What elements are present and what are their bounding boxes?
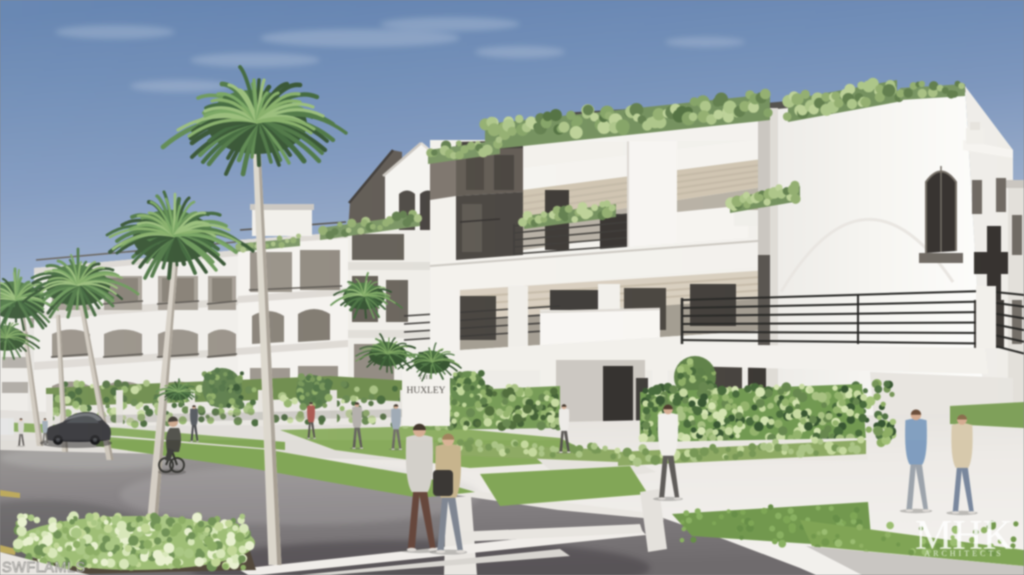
svg-text:ARCHITECTS: ARCHITECTS xyxy=(924,549,1003,558)
svg-text:SWFLAMLS: SWFLAMLS xyxy=(2,560,86,575)
